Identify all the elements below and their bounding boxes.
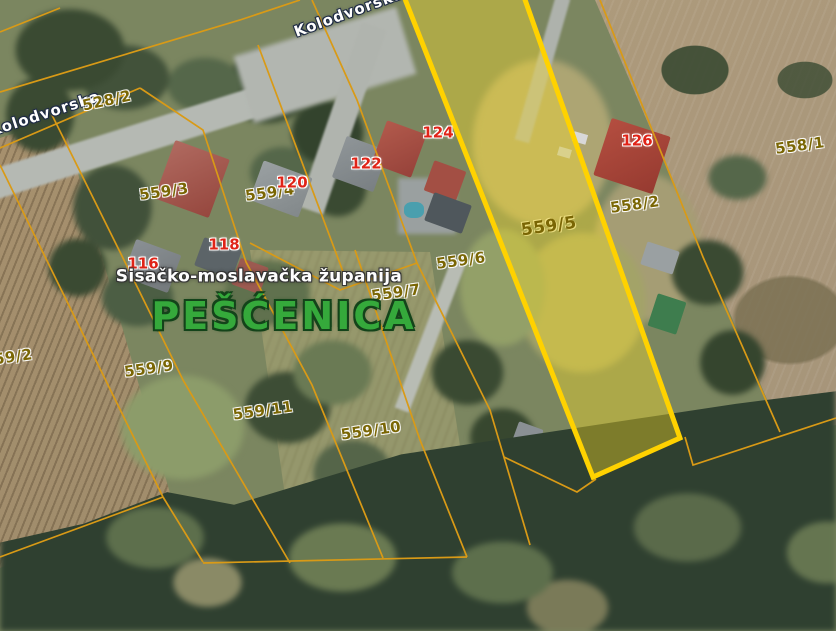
map-viewport[interactable]: Kolodvorska Kolodvorska 528/2 559/3 559/… — [0, 0, 836, 631]
highlighted-parcel[interactable] — [403, 0, 680, 477]
place-label: PEŠĆENICA — [151, 297, 416, 335]
house-number-124: 124 — [422, 126, 453, 141]
house-number-126: 126 — [621, 134, 652, 149]
house-number-118: 118 — [208, 238, 239, 253]
house-number-120: 120 — [276, 176, 307, 191]
county-label: Sisačko-moslavačka županija — [116, 269, 402, 286]
house-number-122: 122 — [350, 157, 381, 172]
